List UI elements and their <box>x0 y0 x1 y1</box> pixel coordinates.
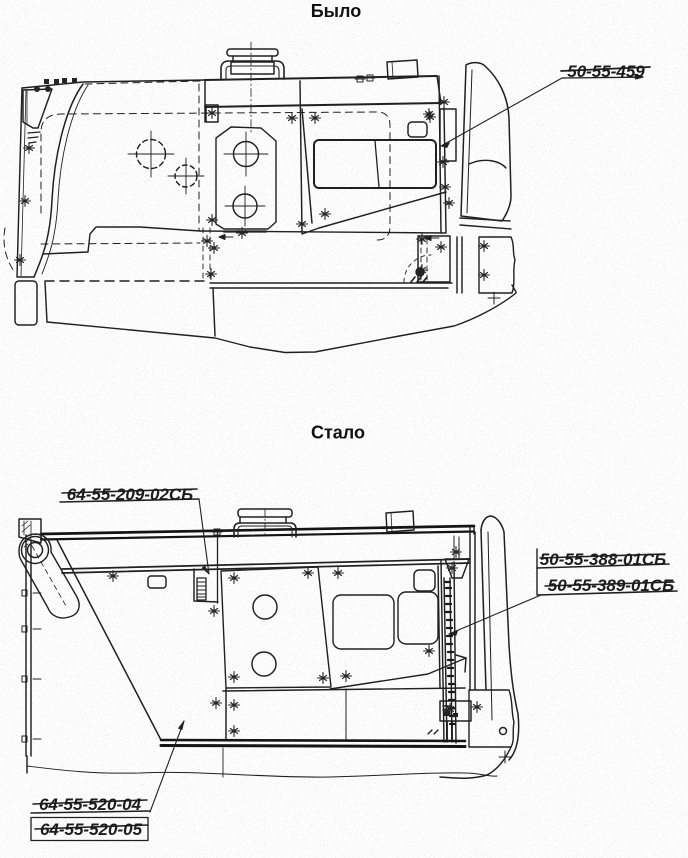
svg-text:50-55-388-01СБ: 50-55-388-01СБ <box>540 550 666 569</box>
svg-text:50-55-389-01СБ: 50-55-389-01СБ <box>548 576 674 595</box>
svg-text:Было: Было <box>311 1 362 21</box>
svg-text:64-55-520-04: 64-55-520-04 <box>39 795 142 814</box>
svg-text:50-55-459: 50-55-459 <box>567 62 645 81</box>
svg-text:64-55-209-02СБ: 64-55-209-02СБ <box>67 485 193 504</box>
svg-text:64-55-520-05: 64-55-520-05 <box>40 820 143 839</box>
svg-text:Стало: Стало <box>311 423 365 443</box>
